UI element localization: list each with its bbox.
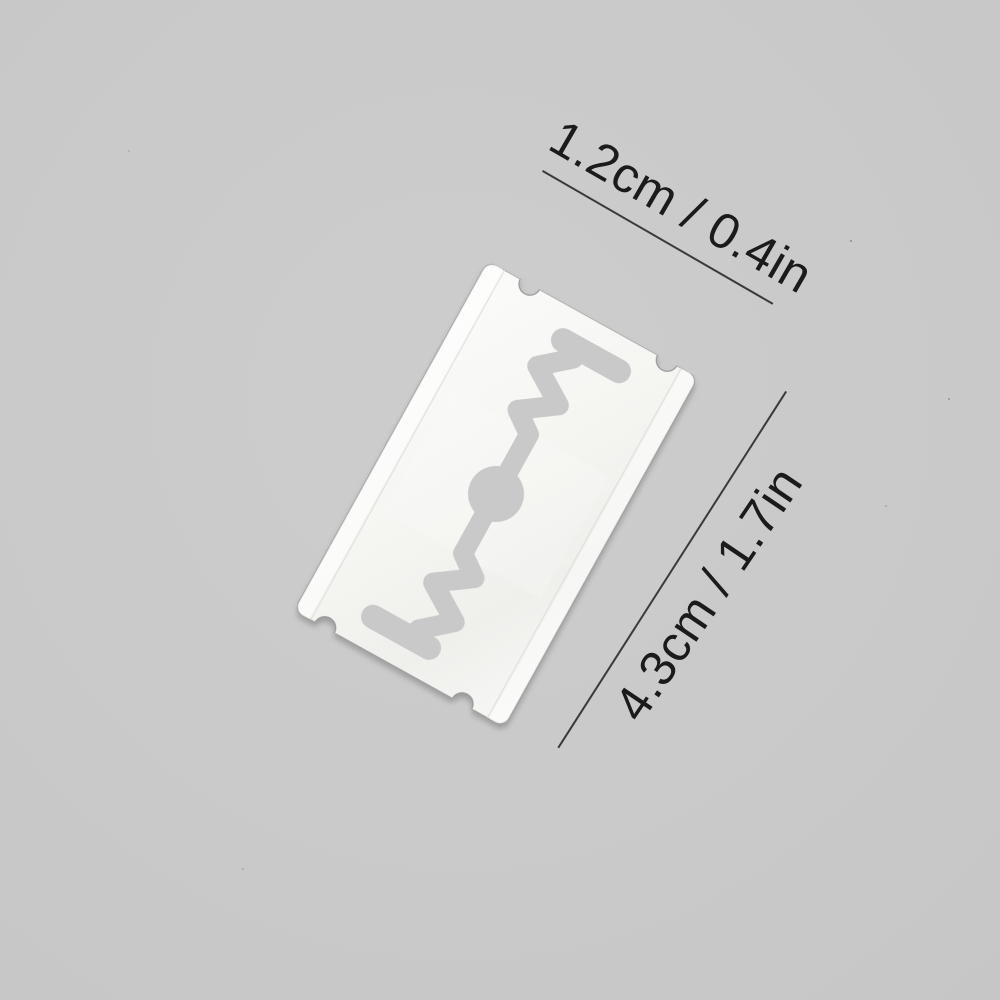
width-dimension-label: 1.2cm / 0.4in [541,110,822,304]
dust-specks [0,0,2,2]
product-photo-scene: 1.2cm / 0.4in 4.3cm / 1.7in [0,0,1000,1000]
